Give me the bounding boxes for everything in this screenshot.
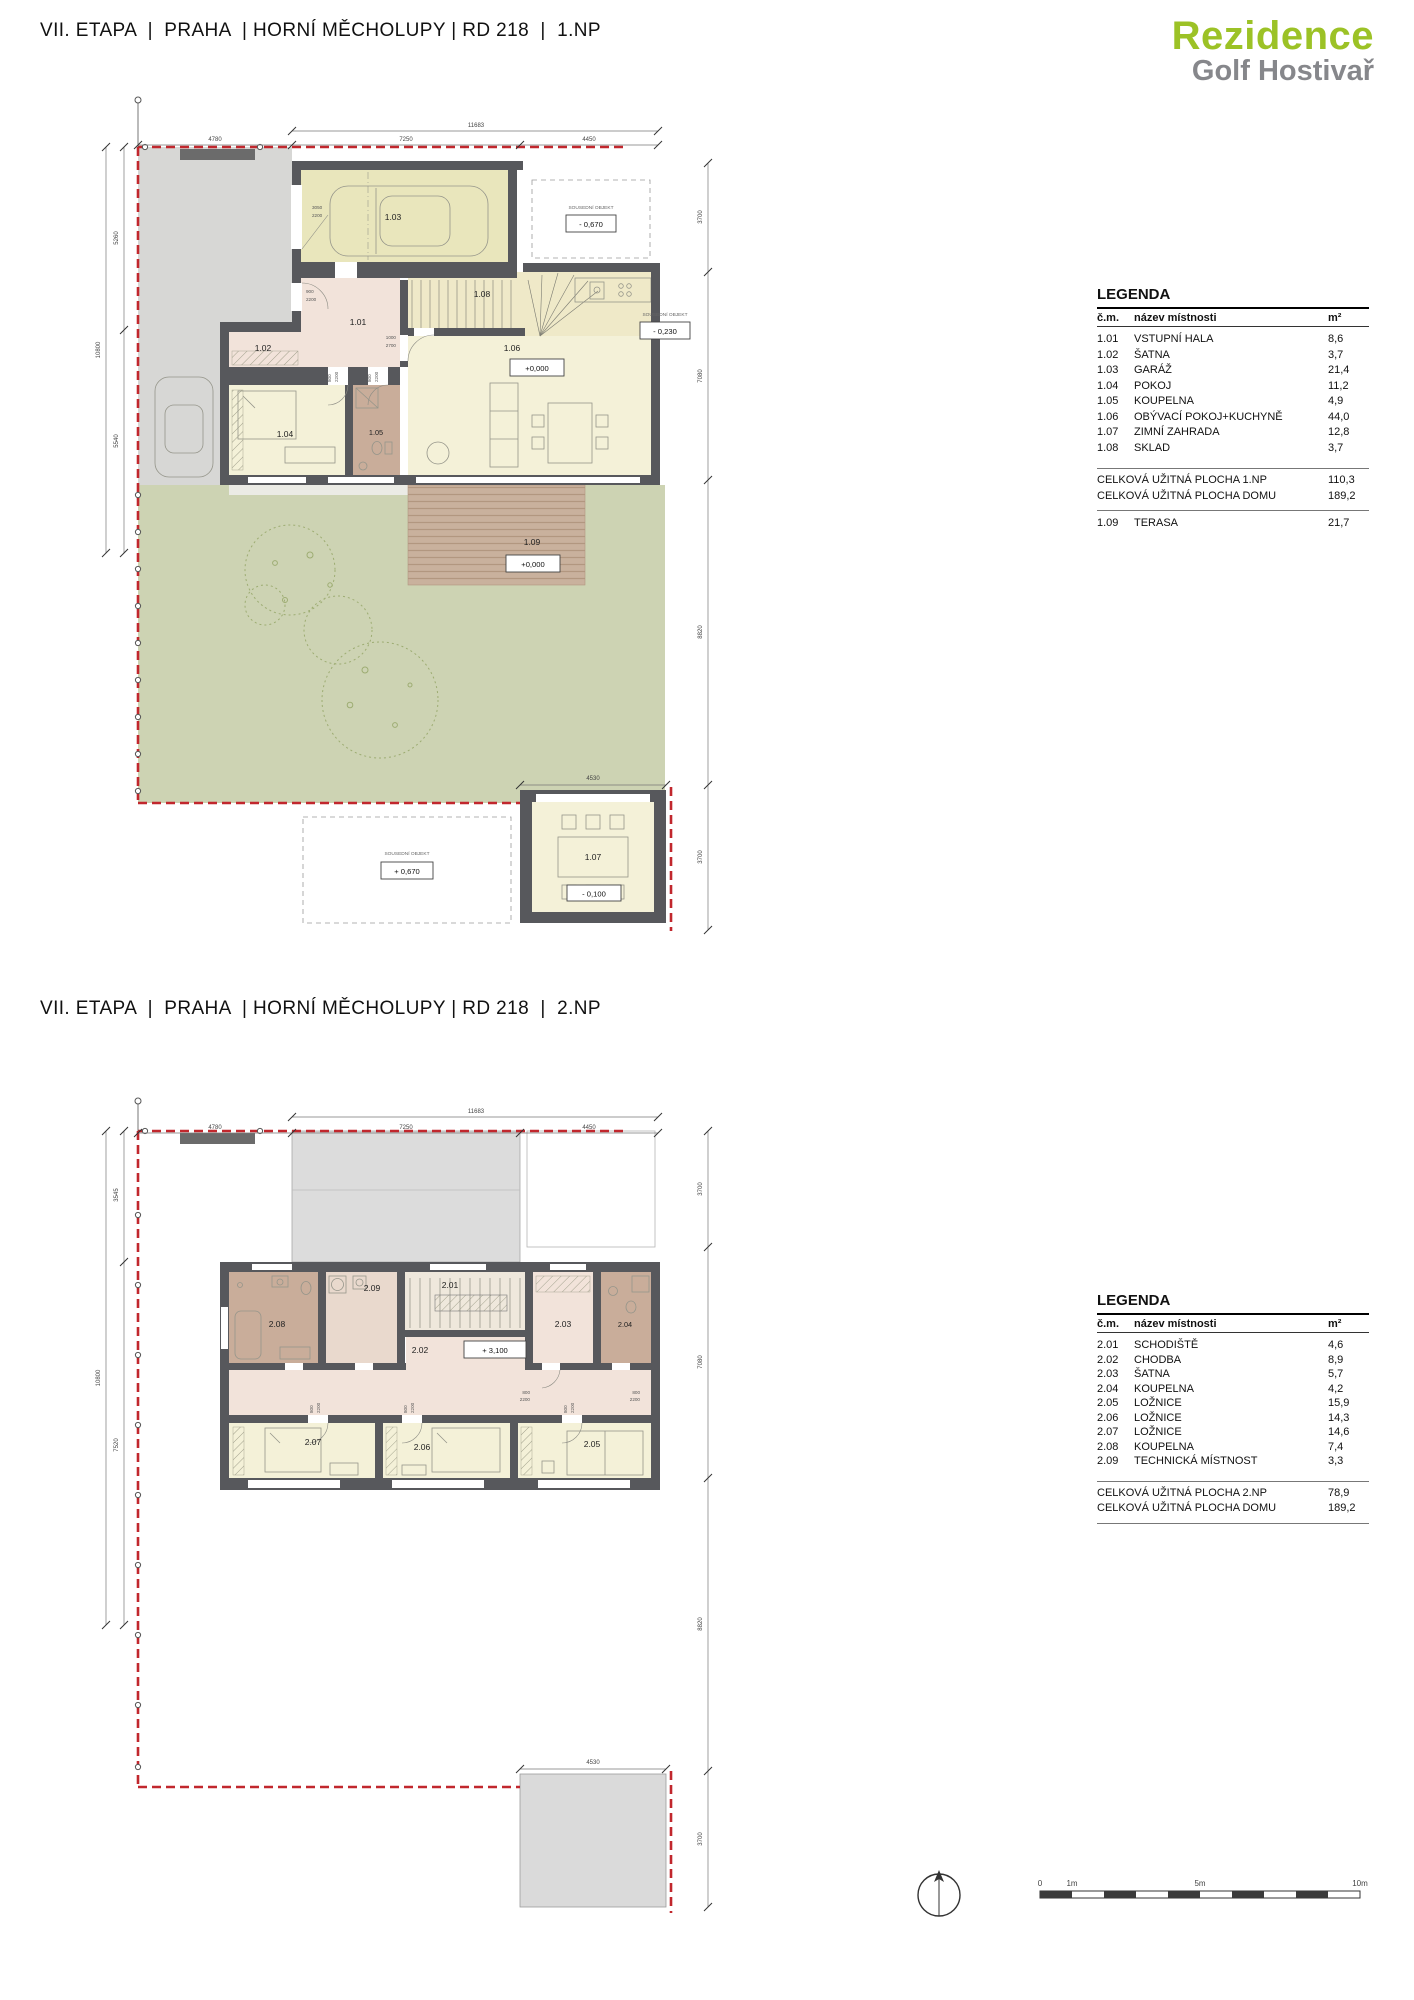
svg-text:2200: 2200	[570, 1402, 575, 1413]
legend-row: 2.05LOŽNICE15,9	[1097, 1396, 1369, 1411]
legend-row: 2.08KOUPELNA7,4	[1097, 1440, 1369, 1455]
svg-text:SOUSEDNÍ OBJEKT: SOUSEDNÍ OBJEKT	[384, 850, 429, 857]
svg-text:10800: 10800	[96, 1369, 102, 1386]
page-title-2np: VII. ETAPA | PRAHA | HORNÍ MĚCHOLUPY | R…	[40, 998, 601, 1020]
legend-total-floor: CELKOVÁ UŽITNÁ PLOCHA 1.NP110,3	[1097, 473, 1369, 489]
room-living	[408, 336, 651, 475]
room-label-2-06: 2.06	[414, 1442, 431, 1452]
svg-text:800: 800	[327, 374, 332, 382]
room-label-1-04: 1.04	[277, 429, 294, 439]
floor-plan-2np: 2.01 2.02 + 3,100 2.03 2.04 2.05 2.06 2.…	[80, 1095, 730, 1925]
svg-text:4530: 4530	[586, 1760, 600, 1766]
svg-text:- 0,670: - 0,670	[579, 220, 603, 229]
legend-row: 2.02CHODBA8,9	[1097, 1353, 1369, 1368]
room-label-2-09: 2.09	[364, 1283, 381, 1293]
svg-text:2200: 2200	[316, 1402, 321, 1413]
room-label-1-07: 1.07	[585, 852, 602, 862]
svg-text:11683: 11683	[468, 123, 485, 129]
room-label-2-01: 2.01	[442, 1280, 459, 1290]
winter-garden-roof	[520, 1774, 666, 1907]
neighbor-outline	[527, 1131, 655, 1247]
legend-row: 2.09TECHNICKÁ MÍSTNOST3,3	[1097, 1454, 1369, 1469]
svg-text:3545: 3545	[114, 1188, 120, 1202]
room-label-2-05: 2.05	[584, 1439, 601, 1449]
north-arrow-icon	[918, 1870, 960, 1916]
svg-text:1000: 1000	[386, 335, 397, 340]
legend-row: 1.08SKLAD3,7	[1097, 441, 1369, 457]
room-label-1-05: 1.05	[369, 428, 383, 437]
svg-text:3700: 3700	[698, 850, 704, 864]
svg-text:8820: 8820	[698, 625, 704, 639]
col-num: č.m.	[1097, 312, 1134, 324]
room-207	[229, 1423, 375, 1478]
legend-header: č.m. název místnosti m²	[1097, 309, 1369, 327]
svg-text:800: 800	[367, 374, 372, 382]
svg-text:2200: 2200	[520, 1397, 531, 1402]
svg-text:800: 800	[522, 1390, 530, 1395]
room-label-1-09: 1.09	[524, 537, 541, 547]
svg-text:5m: 5m	[1194, 1879, 1205, 1888]
scale-bar: 0 1m 5m 10m	[1038, 1879, 1368, 1898]
elev-corridor: + 3,100	[482, 1346, 508, 1355]
site-2np	[180, 1131, 666, 1907]
legend-row: 1.07ZIMNÍ ZAHRADA12,8	[1097, 425, 1369, 441]
legend-row: 1.04POKOJ11,2	[1097, 379, 1369, 395]
legend-1np: LEGENDA č.m. název místnosti m² 1.01VSTU…	[1097, 286, 1369, 532]
legend-row: 1.05KOUPELNA4,9	[1097, 394, 1369, 410]
garden	[138, 485, 665, 803]
plan-sheet: VII. ETAPA | PRAHA | HORNÍ MĚCHOLUPY | R…	[0, 0, 1414, 2000]
svg-text:3700: 3700	[698, 1832, 704, 1846]
svg-text:2200: 2200	[334, 371, 339, 382]
svg-text:2200: 2200	[630, 1397, 641, 1402]
room-label-1-02: 1.02	[255, 343, 272, 353]
map-tools: 0 1m 5m 10m	[880, 1855, 1400, 1945]
svg-text:8820: 8820	[698, 1617, 704, 1631]
svg-text:7080: 7080	[698, 1355, 704, 1369]
svg-text:2200: 2200	[312, 213, 323, 218]
wardrobe-hatch-104	[232, 390, 243, 470]
svg-text:7250: 7250	[399, 1125, 413, 1131]
svg-text:7080: 7080	[698, 369, 704, 383]
garage-roof	[292, 1131, 520, 1262]
svg-text:+ 0,670: + 0,670	[394, 867, 420, 876]
svg-text:800: 800	[632, 1390, 640, 1395]
boundary-gate-wall	[180, 149, 255, 160]
svg-text:800: 800	[403, 1405, 408, 1413]
legend-row: 2.07LOŽNICE14,6	[1097, 1425, 1369, 1440]
svg-text:11683: 11683	[468, 1109, 485, 1115]
svg-text:7250: 7250	[399, 137, 413, 143]
survey-point	[135, 97, 141, 103]
room-label-2-07: 2.07	[305, 1437, 322, 1447]
elev-terrace: +0,000	[521, 560, 544, 569]
svg-text:2200: 2200	[306, 297, 317, 302]
legend-row: 1.06OBÝVACÍ POKOJ+KUCHYNĚ44,0	[1097, 410, 1369, 426]
svg-text:3700: 3700	[698, 210, 704, 224]
svg-text:- 0,230: - 0,230	[653, 327, 677, 336]
svg-text:3700: 3700	[698, 1182, 704, 1196]
legend-row-terrace: 1.09TERASA21,7	[1097, 516, 1369, 532]
svg-text:SOUSEDNÍ OBJEKT: SOUSEDNÍ OBJEKT	[568, 204, 613, 211]
legend-row: 1.01VSTUPNÍ HALA8,6	[1097, 332, 1369, 348]
room-label-1-03: 1.03	[385, 212, 402, 222]
svg-text:2700: 2700	[386, 343, 397, 348]
svg-text:5260: 5260	[114, 231, 120, 245]
room-garage	[301, 170, 508, 262]
legend-total-floor: CELKOVÁ UŽITNÁ PLOCHA 2.NP78,9	[1097, 1486, 1369, 1502]
legend-row: 2.06LOŽNICE14,3	[1097, 1411, 1369, 1426]
svg-text:800: 800	[563, 1405, 568, 1413]
legend-total-house: CELKOVÁ UŽITNÁ PLOCHA DOMU189,2	[1097, 1501, 1369, 1517]
legend-title: LEGENDA	[1097, 286, 1369, 309]
svg-text:4450: 4450	[582, 137, 596, 143]
room-label-1-06: 1.06	[504, 343, 521, 353]
room-label-1-08: 1.08	[474, 289, 491, 299]
legend-title: LEGENDA	[1097, 1292, 1369, 1315]
room-label-2-02: 2.02	[412, 1345, 429, 1355]
room-label-2-04: 2.04	[618, 1320, 632, 1329]
winter-garden-1np: 1.07 - 0,100	[520, 790, 666, 923]
svg-text:4780: 4780	[208, 1125, 222, 1131]
svg-text:800: 800	[309, 1405, 314, 1413]
boundary-gate-wall-2	[180, 1133, 255, 1144]
svg-text:4530: 4530	[586, 776, 600, 782]
svg-text:10800: 10800	[96, 341, 102, 358]
svg-text:5540: 5540	[114, 434, 120, 448]
legend-2np: LEGENDA č.m. název místnosti m² 2.01SCHO…	[1097, 1292, 1369, 1524]
svg-text:900: 900	[306, 289, 314, 294]
legend-row: 2.03ŠATNA5,7	[1097, 1367, 1369, 1382]
wardrobe-hatch-102	[232, 351, 298, 365]
elev-winter: - 0,100	[582, 890, 606, 899]
svg-text:7520: 7520	[114, 1438, 120, 1452]
svg-text:3050: 3050	[312, 205, 323, 210]
neighbor-top: SOUSEDNÍ OBJEKT - 0,670	[527, 175, 655, 263]
col-name: název místnosti	[1134, 312, 1328, 324]
logo-line2: Golf Hostivař	[1172, 57, 1374, 87]
room-label-1-01: 1.01	[350, 317, 367, 327]
legend-row: 1.02ŠATNA3,7	[1097, 348, 1369, 364]
page-title-1np: VII. ETAPA | PRAHA | HORNÍ MĚCHOLUPY | R…	[40, 20, 601, 42]
col-area: m²	[1328, 312, 1369, 324]
svg-text:10m: 10m	[1352, 1879, 1368, 1888]
svg-text:2200: 2200	[374, 371, 379, 382]
svg-text:4780: 4780	[208, 137, 222, 143]
legend-row: 2.01SCHODIŠTĚ4,6	[1097, 1338, 1369, 1353]
legend-row: 2.04KOUPELNA4,2	[1097, 1382, 1369, 1397]
neighbor-right: SOUSEDNÍ OBJEKT - 0,230	[640, 311, 690, 339]
legend-total-house: CELKOVÁ UŽITNÁ PLOCHA DOMU189,2	[1097, 489, 1369, 505]
room-sklad-stairs	[408, 272, 651, 336]
svg-text:2200: 2200	[410, 1402, 415, 1413]
neighbor-bottom: SOUSEDNÍ OBJEKT + 0,670	[303, 817, 511, 923]
elev-living: +0,000	[525, 364, 548, 373]
svg-text:SOUSEDNÍ OBJEKT: SOUSEDNÍ OBJEKT	[642, 311, 687, 318]
room-label-2-08: 2.08	[269, 1319, 286, 1329]
brand-logo: Rezidence Golf Hostivař	[1172, 16, 1374, 86]
svg-text:1m: 1m	[1066, 1879, 1077, 1888]
wardrobe-hatch-203	[536, 1276, 590, 1292]
legend-header: č.m. název místnosti m²	[1097, 1315, 1369, 1333]
floor-plan-1np: 1.07 - 0,100	[80, 85, 730, 945]
svg-text:4450: 4450	[582, 1125, 596, 1131]
walkway	[229, 485, 408, 495]
svg-text:0: 0	[1038, 1879, 1043, 1888]
legend-row: 1.03GARÁŽ21,4	[1097, 363, 1369, 379]
logo-line1: Rezidence	[1172, 16, 1374, 57]
room-label-2-03: 2.03	[555, 1319, 572, 1329]
